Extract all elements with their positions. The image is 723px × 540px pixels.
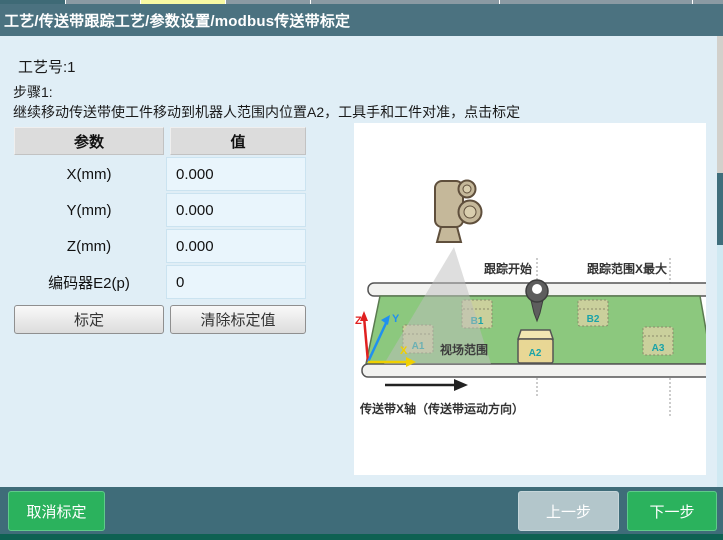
bottom-bar: 取消标定 上一步 下一步 xyxy=(0,487,723,534)
box-a3-ghost: A3 xyxy=(643,327,673,355)
param-value-z[interactable]: 0.000 xyxy=(166,229,306,263)
param-label-encoder: 编码器E2(p) xyxy=(14,265,164,299)
bottom-edge-strip xyxy=(0,534,723,540)
svg-text:X: X xyxy=(400,345,408,357)
svg-text:Y: Y xyxy=(392,313,400,325)
value-column-header: 值 xyxy=(170,127,306,155)
box-a2-label: A2 xyxy=(529,348,542,359)
param-value-x[interactable]: 0.000 xyxy=(166,157,306,191)
cancel-calibration-button[interactable]: 取消标定 xyxy=(8,491,105,531)
belt-axis-label: 传送带X轴（传送带运动方向） xyxy=(359,401,524,416)
rail-bottom xyxy=(362,364,706,377)
tracking-start-label: 跟踪开始 xyxy=(484,261,532,276)
direction-arrow xyxy=(385,379,468,391)
param-value-y[interactable]: 0.000 xyxy=(166,193,306,227)
box-b2-label: B2 xyxy=(587,314,600,325)
axis-z: Z xyxy=(355,311,368,362)
box-b2-ghost: B2 xyxy=(578,300,608,326)
diagram-panel: B1 B2 A1 A3 视场 xyxy=(354,123,706,475)
scrollbar-track[interactable] xyxy=(717,36,723,173)
fov-label: 视场范围 xyxy=(440,342,488,357)
clear-calibration-button[interactable]: 清除标定值 xyxy=(170,305,306,334)
content-area: 工艺号:1 步骤1: 继续移动传送带使工件移动到机器人范围内位置A2，工具手和工… xyxy=(0,36,717,487)
prev-step-button[interactable]: 上一步 xyxy=(518,491,619,531)
param-label-z: Z(mm) xyxy=(14,229,164,263)
instruction-text: 继续移动传送带使工件移动到机器人范围内位置A2，工具手和工件对准，点击标定 xyxy=(13,102,520,122)
scrollbar-thumb[interactable] xyxy=(717,173,723,245)
next-step-button[interactable]: 下一步 xyxy=(627,491,717,531)
param-label-y: Y(mm) xyxy=(14,193,164,227)
svg-text:Z: Z xyxy=(355,315,362,327)
param-value-encoder[interactable]: 0 xyxy=(166,265,306,299)
page-title: 工艺/传送带跟踪工艺/参数设置/modbus传送带标定 xyxy=(4,10,350,31)
box-a2-workpiece: A2 xyxy=(518,330,553,363)
tracking-max-label: 跟踪范围X最大 xyxy=(587,261,667,276)
app-window: 工艺/传送带跟踪工艺/参数设置/modbus传送带标定 工艺号:1 步骤1: 继… xyxy=(0,0,723,540)
step-label: 步骤1: xyxy=(13,82,53,102)
scrollbar[interactable] xyxy=(717,36,723,487)
camera-icon xyxy=(435,181,482,243)
param-label-x: X(mm) xyxy=(14,157,164,191)
conveyor-diagram: B1 B2 A1 A3 视场 xyxy=(354,123,706,475)
box-a3-label: A3 xyxy=(652,343,665,354)
title-bar: 工艺/传送带跟踪工艺/参数设置/modbus传送带标定 xyxy=(0,4,723,36)
param-column-header: 参数 xyxy=(14,127,164,155)
process-number-label: 工艺号:1 xyxy=(18,56,76,77)
calibrate-button[interactable]: 标定 xyxy=(14,305,164,334)
